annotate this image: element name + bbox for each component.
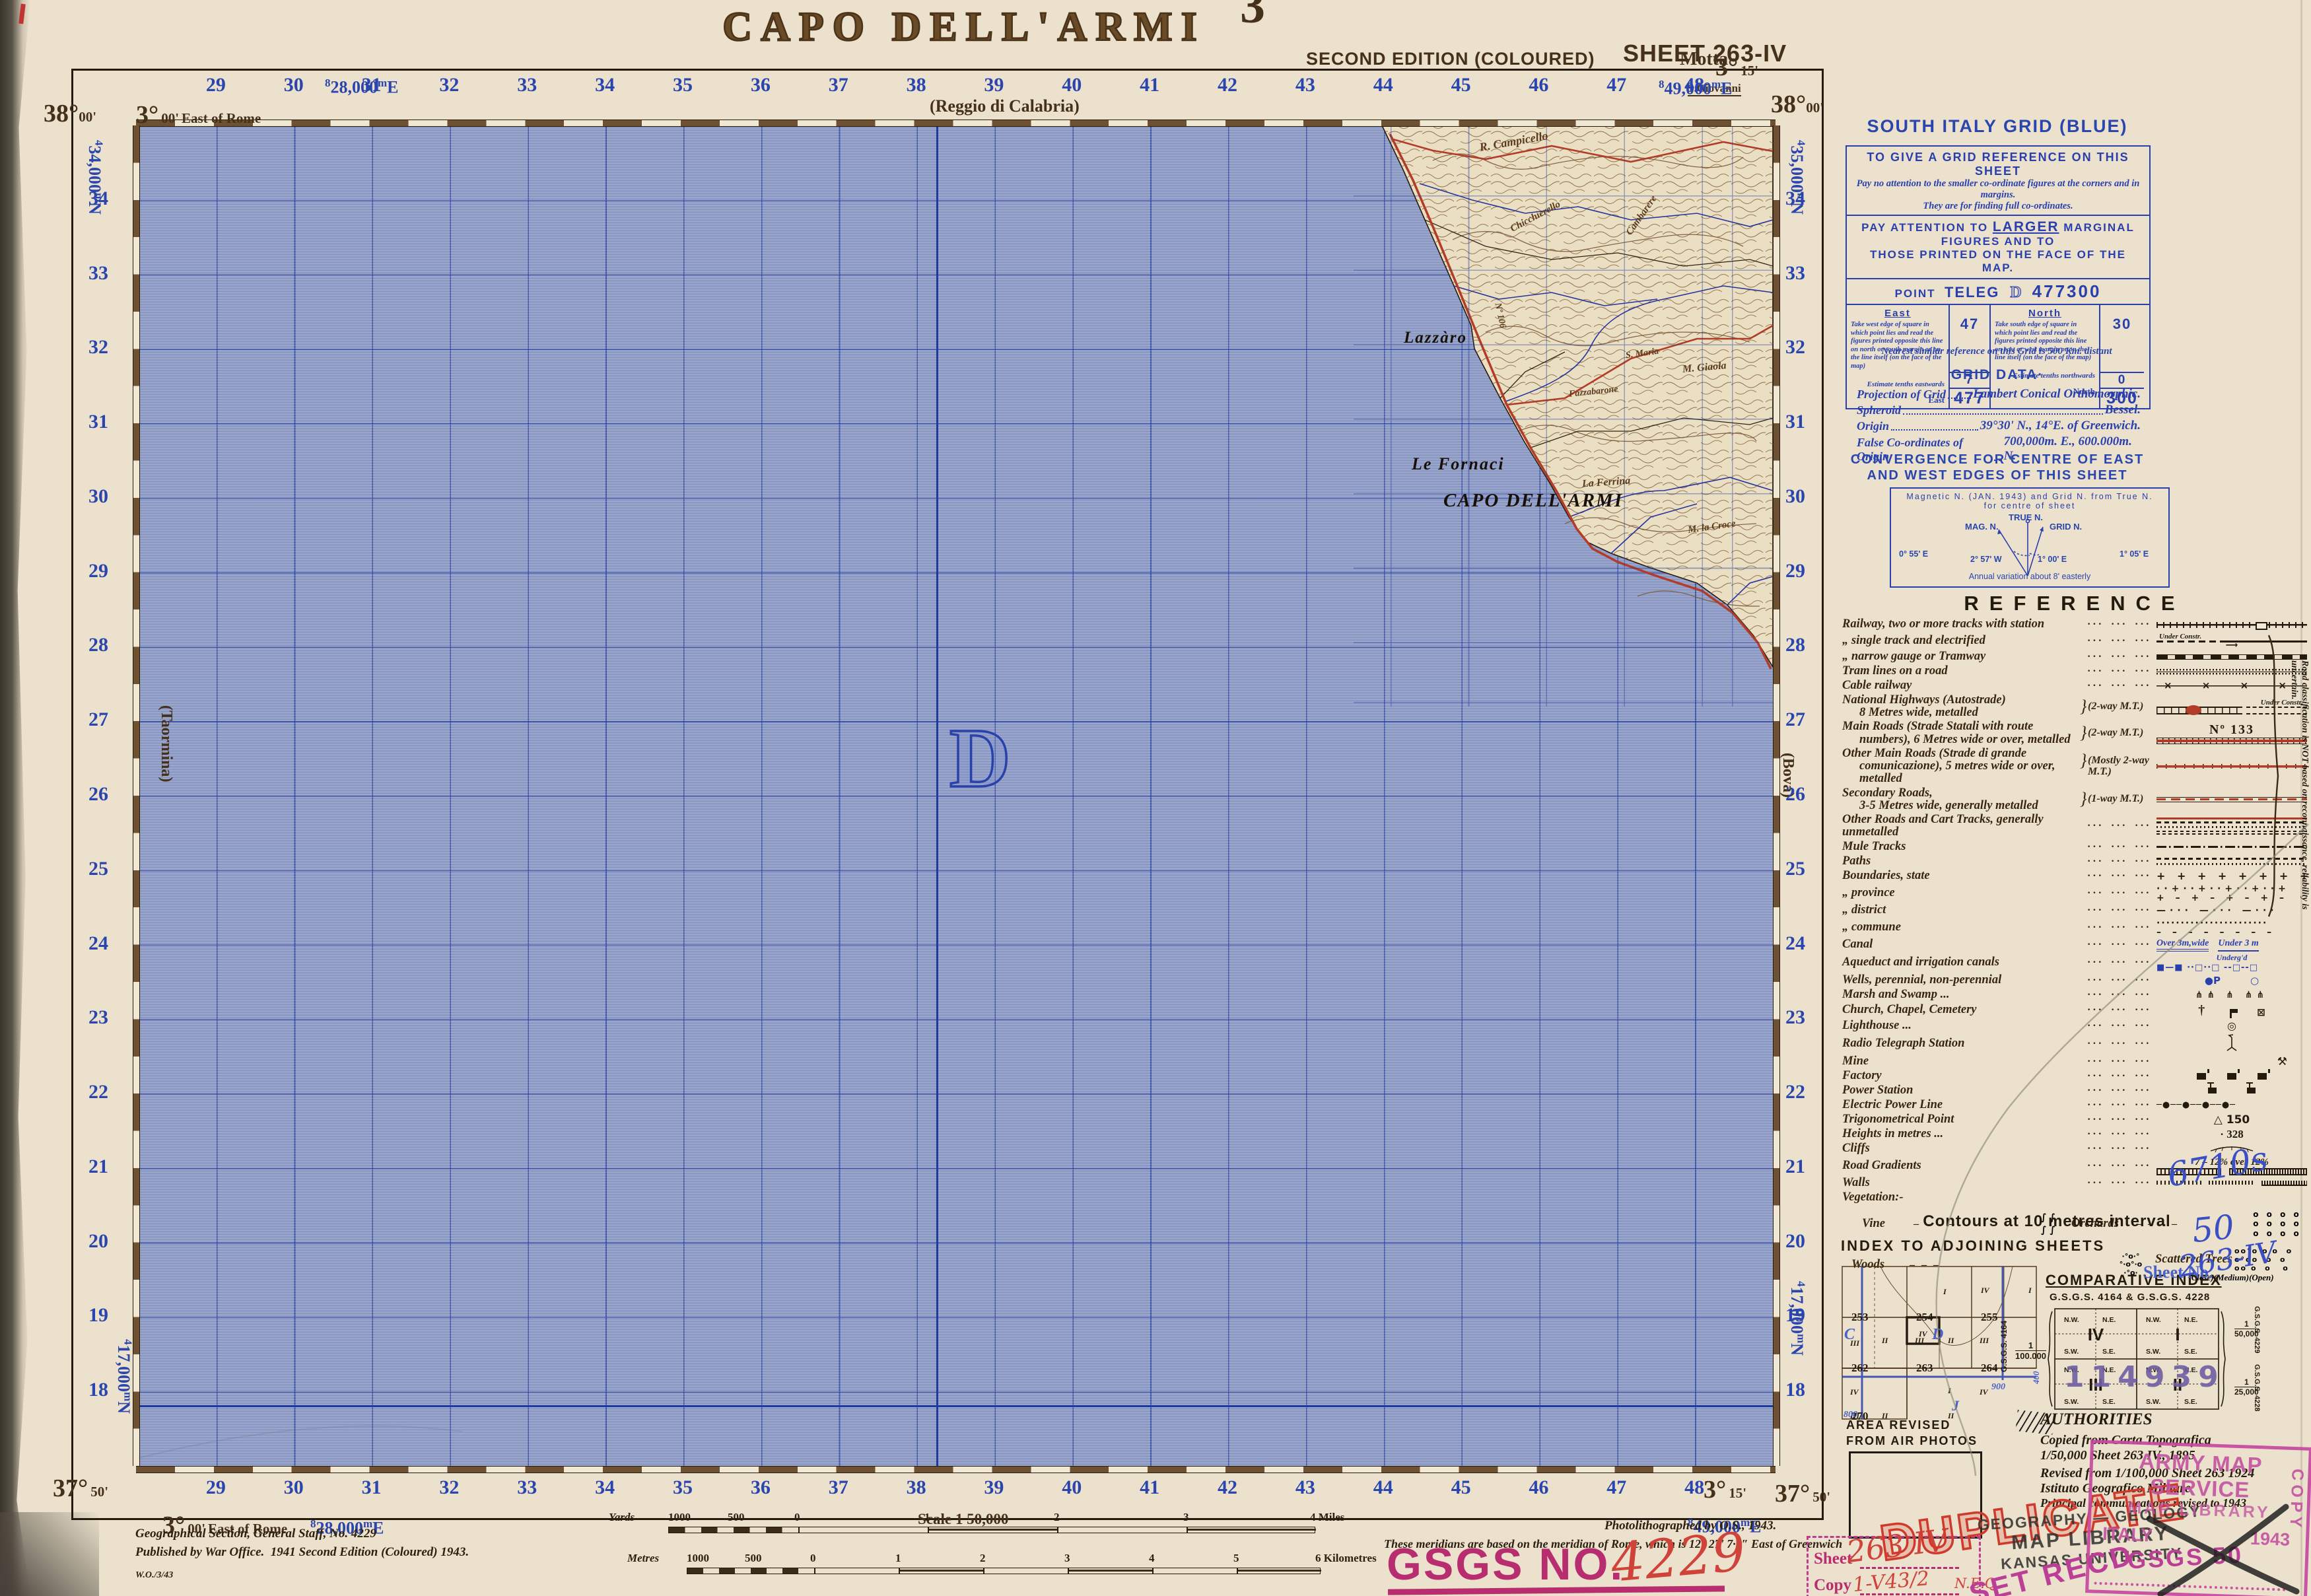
grid-number-left: 27 [78,709,108,731]
grid-number-bottom: 33 [517,1476,537,1499]
scalebar-mark: 2 [1054,1511,1060,1524]
grid-number-right: 34 [1785,188,1805,210]
grid-number-right: 19 [1785,1304,1805,1327]
scalebar-end: 6 Kilometres [1315,1552,1377,1565]
grid-number-top: 48 [1684,74,1704,96]
grid-number-left: 24 [78,932,108,955]
grid-number-top: 38 [907,74,926,96]
grid-number-left: 34 [78,188,108,210]
grid-number-bottom: 40 [1062,1476,1082,1499]
grid-number-left: 31 [78,411,108,433]
scalebar-back: 1000 [687,1552,709,1565]
scalebar [687,1568,1321,1574]
grid-number-top: 37 [829,74,848,96]
scalebar-mark: 3 [1064,1552,1070,1565]
grid-number-top: 44 [1373,74,1393,96]
grid-number-right: 28 [1785,634,1805,656]
grid-number-bottom: 42 [1218,1476,1237,1499]
grid-number-top: 34 [595,74,615,96]
grid-number-right: 21 [1785,1156,1805,1178]
grid-number-bottom: 43 [1295,1476,1315,1499]
grid-number-left: 28 [78,634,108,656]
grid-number-bottom: 46 [1529,1476,1548,1499]
grid-number-left: 18 [78,1379,108,1401]
grid-number-top: 33 [517,74,537,96]
scalebar-zero: 0 [794,1511,800,1524]
scalebar-back: 500 [728,1511,745,1524]
grid-number-right: 20 [1785,1230,1805,1253]
grid-number-right: 33 [1785,262,1805,285]
grid-number-right: 23 [1785,1006,1805,1029]
grid-number-right: 31 [1785,411,1805,433]
grid-number-top: 43 [1295,74,1315,96]
grid-number-bottom: 36 [751,1476,771,1499]
grid-number-right: 29 [1785,560,1805,582]
grid-number-top: 35 [673,74,693,96]
grid-number-right: 32 [1785,336,1805,359]
grid-number-top: 36 [751,74,771,96]
scalebar-back: 500 [745,1552,762,1565]
grid-number-left: 32 [78,336,108,359]
grid-number-bottom: 31 [362,1476,382,1499]
grid-number-bottom: 30 [284,1476,304,1499]
grid-number-top: 31 [362,74,382,96]
grid-number-bottom: 29 [206,1476,226,1499]
overlay-marks [0,0,2311,1596]
scalebar-prefix: Metres [627,1552,659,1565]
grid-number-left: 29 [78,560,108,582]
grid-number-right: 18 [1785,1379,1805,1401]
grid-number-bottom: 32 [439,1476,459,1499]
grid-number-left: 23 [78,1006,108,1029]
grid-number-top: 39 [984,74,1004,96]
grid-number-bottom: 39 [984,1476,1004,1499]
scalebar-prefix: Yards [609,1511,635,1524]
grid-number-right: 24 [1785,932,1805,955]
grid-number-left: 26 [78,783,108,806]
scalebar-mark: 1 [924,1511,930,1524]
grid-number-bottom: 47 [1606,1476,1626,1499]
grid-number-bottom: 45 [1451,1476,1471,1499]
grid-number-left: 21 [78,1156,108,1178]
grid-number-bottom: 41 [1140,1476,1159,1499]
grid-number-top: 46 [1529,74,1548,96]
scalebar-end: 4 Miles [1310,1511,1344,1524]
scalebar-back: 1000 [668,1511,691,1524]
grid-number-right: 22 [1785,1081,1805,1103]
grid-number-bottom: 38 [907,1476,926,1499]
scalebar-mark: 3 [1183,1511,1189,1524]
grid-number-top: 29 [206,74,226,96]
grid-number-right: 26 [1785,783,1805,806]
grid-number-left: 25 [78,858,108,880]
grid-number-left: 30 [78,485,108,508]
grid-number-left: 19 [78,1304,108,1327]
grid-number-right: 25 [1785,858,1805,880]
grid-number-left: 20 [78,1230,108,1253]
grid-number-bottom: 48 [1684,1476,1704,1499]
scalebar-zero: 0 [810,1552,816,1565]
grid-number-left: 22 [78,1081,108,1103]
grid-number-top: 40 [1062,74,1082,96]
map-sheet: ITALY 1:50,000. CAPO DELL'ARMI 3 SECOND … [0,0,2311,1596]
scalebar-mark: 2 [980,1552,986,1565]
grid-number-bottom: 37 [829,1476,848,1499]
grid-number-top: 42 [1218,74,1237,96]
scalebar-mark: 5 [1233,1552,1239,1565]
scalebar [668,1527,1315,1533]
grid-number-top: 45 [1451,74,1471,96]
grid-number-right: 30 [1785,485,1805,508]
grid-number-bottom: 44 [1373,1476,1393,1499]
grid-number-top: 47 [1606,74,1626,96]
grid-number-bottom: 34 [595,1476,615,1499]
grid-number-right: 27 [1785,709,1805,731]
grid-number-top: 32 [439,74,459,96]
grid-number-left: 33 [78,262,108,285]
scalebar-mark: 4 [1149,1552,1155,1565]
grid-number-bottom: 35 [673,1476,693,1499]
scalebar-mark: 1 [895,1552,901,1565]
grid-number-top: 41 [1140,74,1159,96]
grid-number-top: 30 [284,74,304,96]
